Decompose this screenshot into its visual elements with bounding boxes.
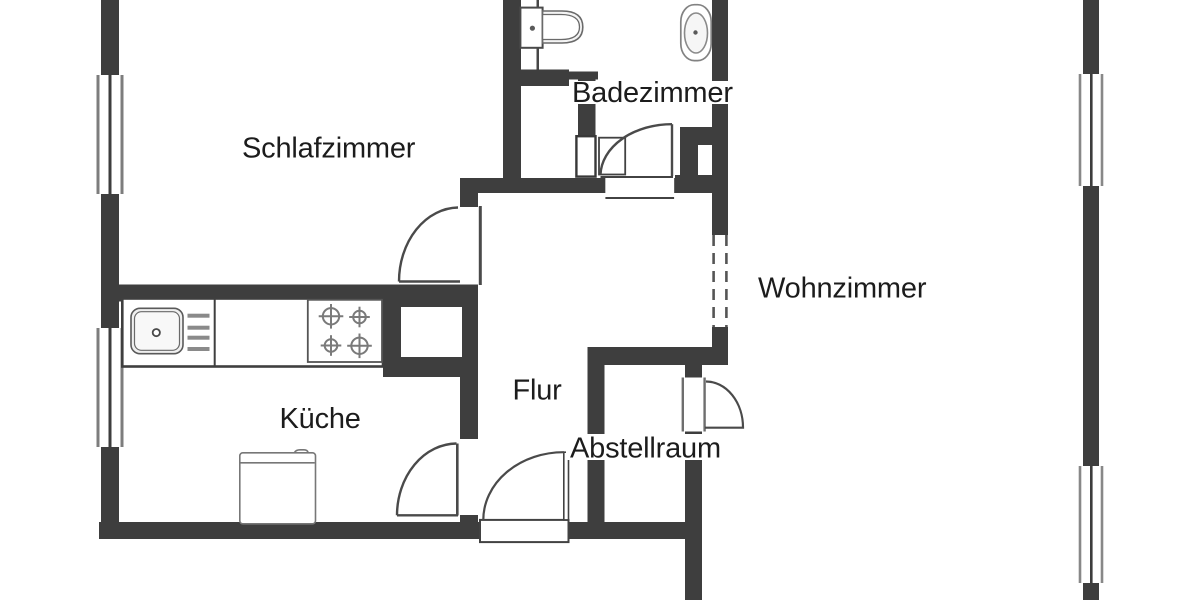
svg-text:Abstellraum: Abstellraum [570,433,721,465]
svg-text:Schlafzimmer: Schlafzimmer [242,133,416,165]
svg-text:Wohnzimmer: Wohnzimmer [758,273,927,305]
svg-text:Flur: Flur [513,375,563,407]
svg-text:Badezimmer: Badezimmer [572,77,733,109]
svg-text:Küche: Küche [280,403,361,435]
